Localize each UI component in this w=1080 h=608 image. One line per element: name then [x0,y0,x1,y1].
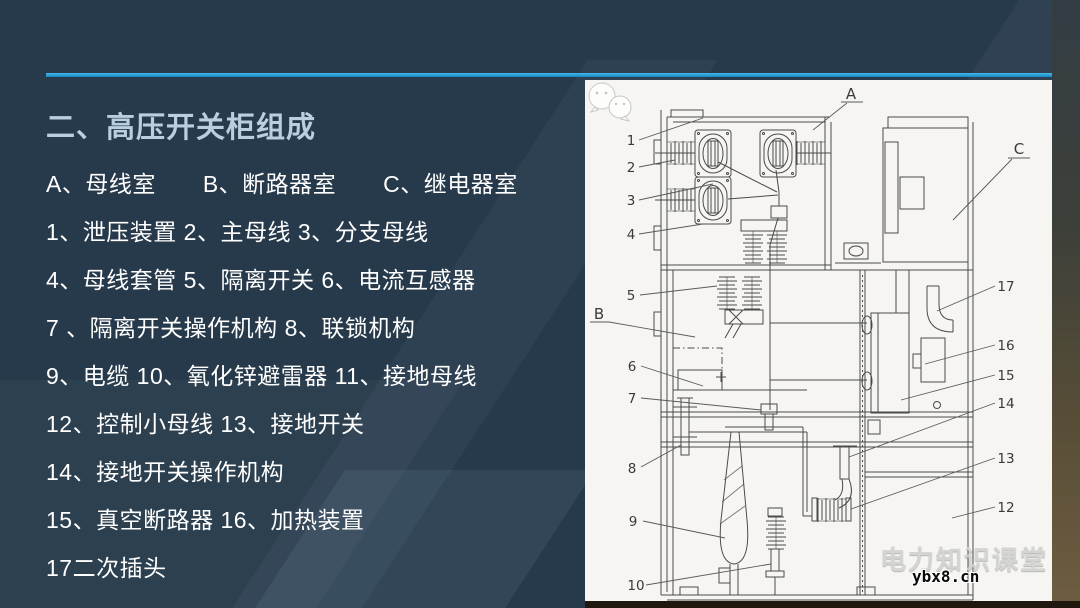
title-accent-rule [46,73,1052,77]
legend-line-item-14: 14、接地开关操作机构 [46,448,591,496]
slide-root: 二、高压开关柜组成 A、母线室 B、断路器室 C、继电器室 1、泄压装置 2、主… [0,0,1080,608]
diagram-panel: A C B 1 2 3 4 5 6 7 8 9 10 17 16 15 14 1… [585,80,1052,601]
watermark: 电力知识课堂 ybx8.cn [585,80,1052,601]
wechat-bubbles-icon [585,80,639,126]
legend-line-rooms: A、母线室 B、断路器室 C、继电器室 [46,160,591,208]
legend-line-items-15-16: 15、真空断路器 16、加热装置 [46,496,591,544]
photo-edge-right [1052,0,1080,608]
legend-line-items-12-13: 12、控制小母线 13、接地开关 [46,400,591,448]
legend-line-items-9-11: 9、电缆 10、氧化锌避雷器 11、接地母线 [46,352,591,400]
watermark-site-url: ybx8.cn [912,567,979,586]
photo-edge-bottom [585,601,1080,608]
legend-line-items-7-8: 7 、隔离开关操作机构 8、联锁机构 [46,304,591,352]
slide-title: 二、高压开关柜组成 [46,104,316,146]
legend-line-items-4-6: 4、母线套管 5、隔离开关 6、电流互感器 [46,256,591,304]
legend-line-items-1-3: 1、泄压装置 2、主母线 3、分支母线 [46,208,591,256]
legend-line-item-17: 17二次插头 [46,544,591,592]
component-legend: A、母线室 B、断路器室 C、继电器室 1、泄压装置 2、主母线 3、分支母线 … [46,160,591,592]
